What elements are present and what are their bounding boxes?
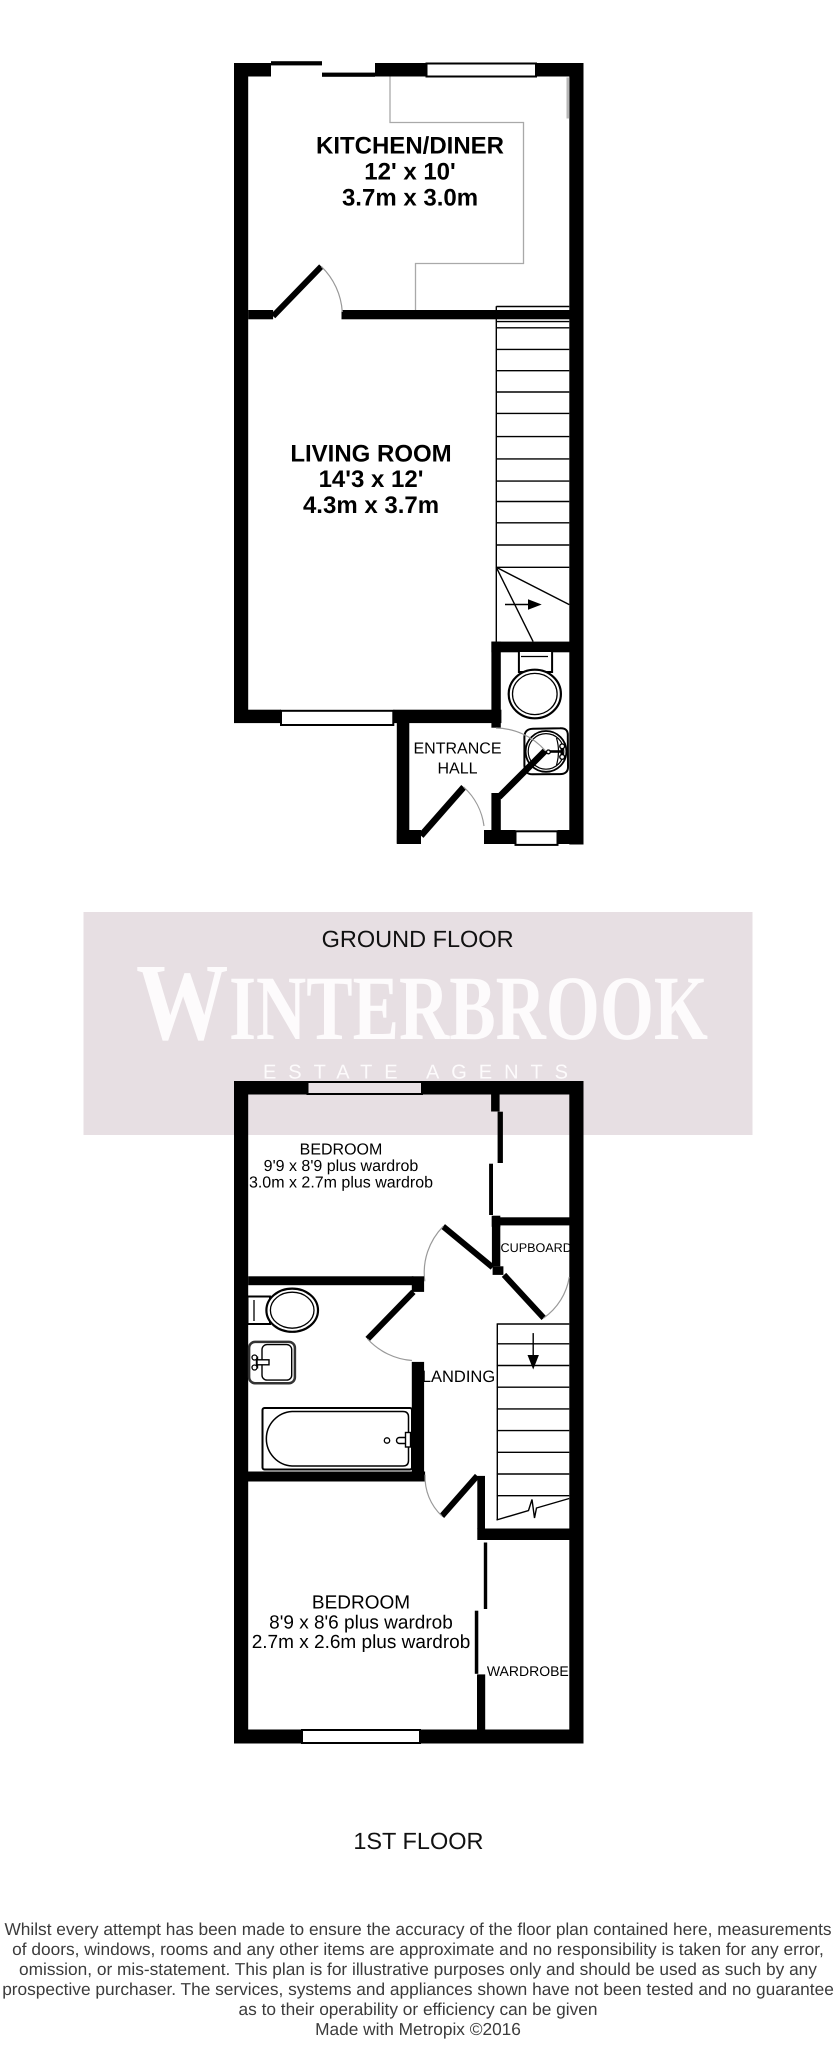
svg-text:CUPBOARD: CUPBOARD [501,1241,572,1255]
svg-text:GROUND FLOOR: GROUND FLOOR [322,926,514,952]
svg-text:4.3m x 3.7m: 4.3m x 3.7m [303,492,439,519]
svg-text:WARDROBE: WARDROBE [487,1663,569,1679]
svg-text:LANDING: LANDING [422,1368,495,1386]
svg-text:ENTRANCE: ENTRANCE [413,741,501,758]
svg-text:12' x 10': 12' x 10' [364,159,456,186]
svg-text:of doors, windows, rooms and a: of doors, windows, rooms and any other i… [12,1939,824,1959]
svg-text:HALL: HALL [437,761,477,778]
svg-text:14'3 x 12': 14'3 x 12' [319,466,424,493]
svg-text:Whilst every attempt has been: Whilst every attempt has been made to en… [4,1919,831,1939]
svg-text:prospective purchaser. The ser: prospective purchaser. The services, sys… [2,1979,834,1999]
svg-text:2.7m x 2.6m plus wardrob: 2.7m x 2.6m plus wardrob [252,1632,471,1653]
svg-text:W: W [136,941,228,1063]
svg-text:3.0m x 2.7m plus wardrob: 3.0m x 2.7m plus wardrob [249,1174,433,1191]
svg-text:BEDROOM: BEDROOM [300,1141,383,1158]
svg-text:9'9 x 8'9 plus wardrob: 9'9 x 8'9 plus wardrob [264,1158,419,1175]
svg-text:1ST FLOOR: 1ST FLOOR [353,1828,483,1854]
svg-text:as to their operability or eff: as to their operability or efficiency ca… [239,1999,598,2019]
svg-text:Made with Metropix ©2016: Made with Metropix ©2016 [315,2019,521,2039]
svg-text:INTERBROOK: INTERBROOK [229,957,708,1059]
svg-text:LIVING ROOM: LIVING ROOM [290,440,451,467]
svg-text:3.7m x 3.0m: 3.7m x 3.0m [342,185,478,212]
svg-text:BEDROOM: BEDROOM [312,1592,410,1613]
svg-text:8'9 x 8'6 plus wardrob: 8'9 x 8'6 plus wardrob [269,1612,453,1633]
svg-text:KITCHEN/DINER: KITCHEN/DINER [316,133,504,160]
svg-text:omission, or mis-statement. Th: omission, or mis-statement. This plan is… [19,1959,817,1979]
